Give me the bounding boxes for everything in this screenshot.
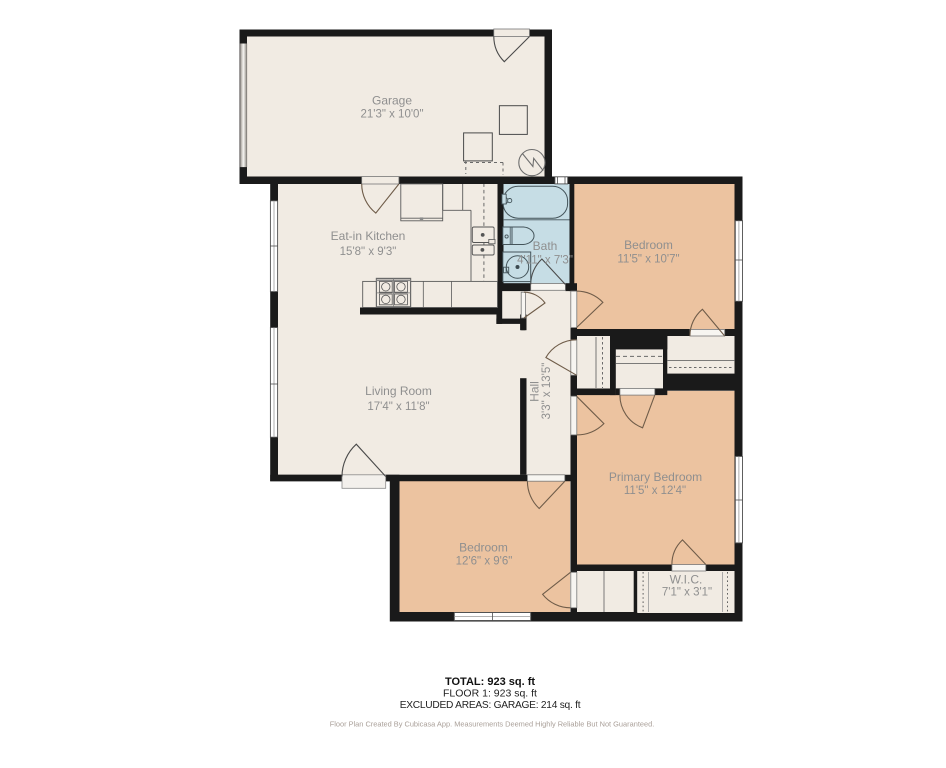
svg-text:3'3" x 13'5": 3'3" x 13'5"	[541, 363, 553, 420]
svg-text:EXCLUDED AREAS: GARAGE: 214 sq: EXCLUDED AREAS: GARAGE: 214 sq. ft	[400, 700, 581, 711]
svg-text:Bath: Bath	[533, 239, 558, 253]
svg-text:12'6" x 9'6": 12'6" x 9'6"	[456, 556, 513, 568]
svg-text:Floor Plan Created By Cubicasa: Floor Plan Created By Cubicasa App. Meas…	[330, 720, 655, 729]
svg-text:11'5" x 10'7": 11'5" x 10'7"	[617, 254, 679, 266]
svg-text:17'4" x 11'8": 17'4" x 11'8"	[367, 401, 429, 413]
svg-text:Bedroom: Bedroom	[459, 541, 508, 555]
svg-text:4'11" x 7'3": 4'11" x 7'3"	[517, 255, 573, 267]
svg-text:21'3" x 10'0": 21'3" x 10'0"	[360, 109, 423, 121]
svg-text:11'5" x 12'4": 11'5" x 12'4"	[624, 485, 686, 497]
svg-text:Primary Bedroom: Primary Bedroom	[609, 470, 702, 484]
svg-text:Living Room: Living Room	[365, 384, 432, 398]
svg-text:15'8" x 9'3": 15'8" x 9'3"	[340, 246, 397, 258]
svg-text:Hall: Hall	[528, 381, 542, 402]
svg-text:W.I.C.: W.I.C.	[670, 573, 703, 587]
svg-text:7'1" x 3'1": 7'1" x 3'1"	[662, 587, 712, 599]
svg-text:TOTAL: 923 sq. ft: TOTAL: 923 sq. ft	[445, 676, 535, 688]
svg-text:FLOOR 1: 923 sq. ft: FLOOR 1: 923 sq. ft	[443, 688, 537, 700]
svg-text:Garage: Garage	[372, 94, 412, 108]
svg-text:Eat-in Kitchen: Eat-in Kitchen	[331, 229, 406, 243]
svg-text:Bedroom: Bedroom	[624, 238, 673, 252]
